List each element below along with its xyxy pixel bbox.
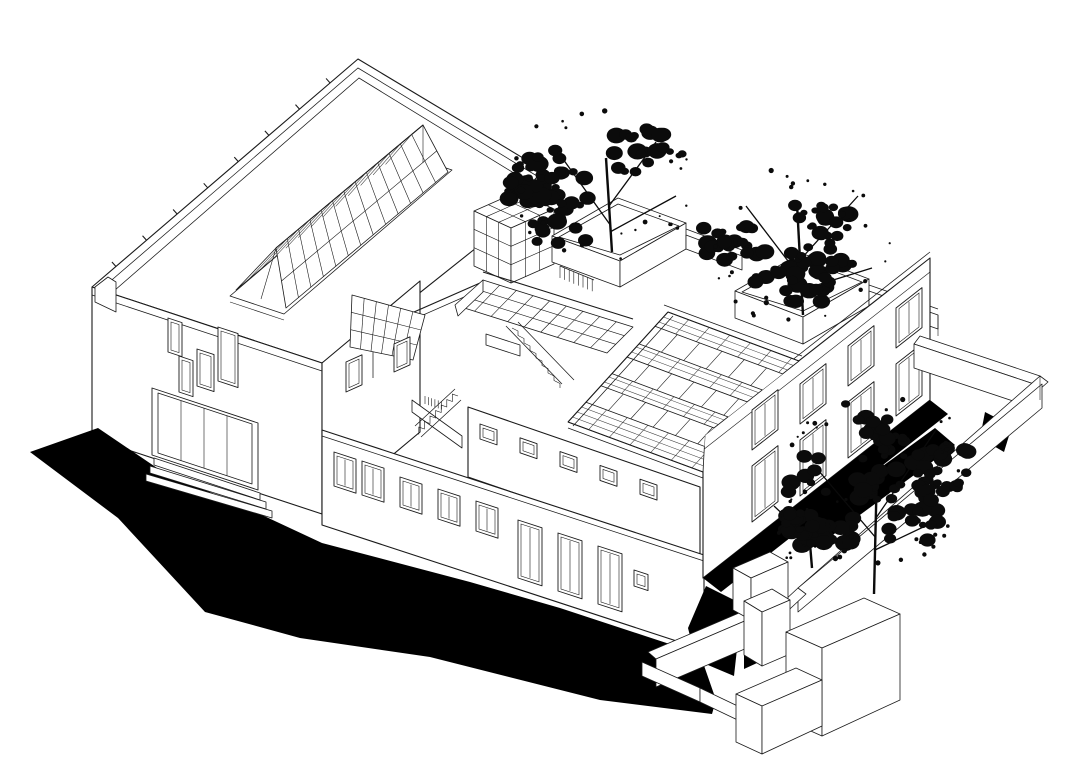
foliage-blob: [532, 152, 544, 162]
window: [179, 356, 193, 397]
foliage-blob: [756, 244, 775, 259]
foliage-blob: [569, 222, 583, 233]
window: [197, 349, 214, 392]
foliage-speckle: [957, 469, 960, 472]
foliage-speckle: [803, 490, 808, 495]
foliage-speckle: [816, 426, 818, 428]
foliage-blob: [806, 540, 815, 548]
foliage-blob: [544, 172, 559, 184]
foliage-blob: [790, 478, 801, 487]
foliage-blob: [551, 237, 566, 249]
foliage-speckle: [557, 152, 560, 155]
foliage-speckle: [837, 555, 842, 560]
foliage-blob: [866, 416, 880, 428]
foliage-blob: [961, 468, 971, 477]
foliage-blob: [569, 168, 578, 175]
foliage-blob: [896, 481, 906, 489]
foliage-speckle: [739, 206, 743, 210]
tower-box: [744, 589, 790, 666]
foliage-blob: [887, 462, 906, 478]
foliage-speckle: [933, 533, 937, 537]
foliage-blob: [676, 153, 683, 159]
foliage-speckle: [669, 159, 673, 163]
foliage-speckle: [900, 397, 905, 402]
foliage-blob: [821, 488, 831, 496]
foliage-speckle: [859, 288, 863, 292]
foliage-speckle: [943, 441, 948, 446]
foliage-blob: [532, 237, 543, 246]
foliage-blob: [576, 171, 594, 185]
foliage-blob: [736, 224, 745, 232]
foliage-speckle: [752, 314, 756, 318]
foliage-blob: [740, 248, 753, 259]
foliage-speckle: [968, 455, 971, 458]
foliage-speckle: [777, 531, 781, 535]
foliage-speckle: [643, 220, 648, 225]
foliage-blob: [803, 243, 813, 251]
foliage-speckle: [864, 224, 868, 228]
foliage-blob: [512, 163, 524, 173]
foliage-blob: [847, 260, 857, 268]
foliage-speckle: [634, 229, 636, 231]
foliage-blob: [657, 142, 670, 153]
foliage-speckle: [945, 447, 949, 451]
foliage-blob: [838, 211, 846, 217]
foliage-blob: [651, 128, 669, 143]
foliage-blob: [503, 176, 519, 189]
foliage-blob: [630, 167, 642, 176]
foliage-speckle: [718, 277, 720, 279]
foliage-blob: [642, 158, 654, 168]
foliage-blob: [853, 415, 865, 425]
foliage-speckle: [789, 297, 792, 300]
foliage-speckle: [919, 540, 923, 544]
foliage-speckle: [713, 244, 718, 249]
foliage-speckle: [946, 524, 950, 528]
foliage-blob: [923, 494, 939, 507]
foliage-blob: [781, 520, 791, 528]
foliage-speckle: [863, 279, 867, 283]
foliage-speckle: [764, 296, 768, 300]
foliage-blob: [787, 276, 798, 285]
foliage-blob: [805, 520, 820, 532]
foliage-speckle: [844, 498, 847, 501]
foliage-blob: [517, 187, 525, 194]
foliage-speckle: [561, 120, 564, 123]
foliage-blob: [886, 494, 897, 503]
foliage-blob: [936, 486, 950, 498]
foliage-blob: [556, 199, 566, 207]
foliage-speckle: [789, 500, 792, 503]
foliage-speckle: [665, 145, 668, 148]
foliage-speckle: [534, 124, 538, 128]
foliage-blob: [636, 150, 646, 158]
foliage-blob: [825, 256, 838, 267]
foliage-blob: [748, 275, 764, 288]
foliage-speckle: [914, 537, 918, 541]
foliage-speckle: [619, 257, 622, 260]
window: [168, 318, 182, 357]
foliage-blob: [783, 509, 796, 520]
foliage-blob: [771, 266, 787, 279]
foliage-speckle: [785, 556, 788, 559]
foliage-blob: [817, 203, 828, 212]
foliage-speckle: [730, 270, 734, 274]
foliage-speckle: [520, 214, 523, 217]
foliage-blob: [854, 482, 873, 497]
foliage-blob: [953, 479, 964, 488]
foliage-blob: [788, 295, 804, 308]
foliage-speckle: [861, 194, 865, 198]
foliage-blob: [881, 414, 893, 424]
foliage-blob: [812, 226, 829, 240]
foliage-blob: [547, 213, 567, 229]
foliage-speckle: [789, 552, 792, 555]
foliage-blob: [625, 133, 637, 143]
foliage-speckle: [833, 556, 838, 561]
foliage-blob: [505, 193, 517, 203]
foliage-speckle: [875, 560, 880, 565]
foliage-speckle: [942, 534, 946, 538]
foliage-speckle: [824, 422, 828, 426]
foliage-speckle: [931, 545, 935, 549]
foliage-speckle: [789, 556, 792, 559]
foliage-blob: [779, 285, 792, 296]
foliage-speckle: [806, 179, 809, 182]
foliage-speckle: [797, 436, 799, 438]
foliage-speckle: [514, 156, 518, 160]
foliage-speckle: [580, 112, 585, 117]
foliage-speckle: [769, 168, 774, 173]
foliage-blob: [843, 224, 852, 231]
foliage-blob: [884, 534, 896, 544]
foliage-speckle: [812, 421, 817, 426]
foliage-blob: [881, 523, 896, 535]
foliage-speckle: [824, 315, 826, 317]
foliage-blob: [795, 509, 805, 517]
foliage-speckle: [823, 183, 826, 186]
foliage-blob: [788, 200, 802, 211]
foliage-speckle: [669, 223, 673, 227]
foliage-speckle: [790, 443, 795, 448]
foliage-blob: [912, 449, 925, 460]
foliage-speckle: [948, 417, 951, 420]
foliage-blob: [888, 511, 901, 521]
foliage-blob: [793, 212, 806, 223]
foliage-blob: [905, 515, 920, 527]
foliage-speckle: [963, 453, 968, 458]
foliage-blob: [579, 191, 595, 204]
foliage-speckle: [885, 408, 888, 411]
foliage-speckle: [806, 421, 809, 424]
foliage-blob: [878, 445, 889, 454]
foliage-speckle: [849, 534, 854, 539]
foliage-blob: [796, 526, 804, 532]
foliage-blob: [717, 237, 731, 249]
foliage-blob: [841, 400, 850, 407]
foliage-blob: [913, 469, 923, 478]
foliage-speckle: [786, 175, 789, 178]
foliage-blob: [547, 207, 554, 213]
foliage-speckle: [786, 317, 790, 321]
foliage-speckle: [620, 232, 622, 234]
foliage-speckle: [852, 190, 855, 193]
foliage-speckle: [802, 431, 805, 434]
foliage-speckle: [884, 260, 886, 262]
foliage-speckle: [676, 226, 679, 229]
drawing-canvas: Axonometric architectural line drawing o…: [0, 0, 1080, 760]
foliage-blob: [925, 520, 937, 530]
foliage-blob: [809, 284, 823, 295]
foliage-blob: [797, 252, 806, 259]
foliage-speckle: [728, 275, 731, 278]
foliage-speckle: [941, 451, 944, 454]
foliage-speckle: [940, 420, 943, 423]
foliage-blob: [528, 219, 539, 228]
foliage-blob: [548, 145, 562, 157]
foliage-blob: [797, 450, 813, 463]
foliage-blob: [611, 162, 626, 174]
foliage-blob: [807, 479, 815, 486]
foliage-blob: [858, 455, 867, 463]
foliage-blob: [831, 231, 843, 241]
foliage-blob: [807, 464, 822, 476]
foliage-blob: [829, 216, 843, 228]
axonometric-drawing: Axonometric architectural line drawing o…: [0, 0, 1080, 760]
foliage-speckle: [528, 231, 531, 234]
foliage-speckle: [764, 300, 769, 305]
foliage-speckle: [842, 548, 847, 553]
foliage-speckle: [564, 126, 567, 129]
foliage-blob: [726, 252, 737, 261]
foliage-blob: [696, 222, 711, 235]
foliage-blob: [818, 272, 831, 283]
foliage-speckle: [541, 220, 546, 225]
foliage-blob: [933, 479, 942, 486]
foliage-blob: [815, 535, 833, 550]
foliage-speckle: [580, 243, 584, 247]
foliage-blob: [859, 427, 874, 439]
foliage-speckle: [789, 185, 793, 189]
foliage-speckle: [680, 167, 683, 170]
foliage-speckle: [889, 242, 891, 244]
foliage-speckle: [562, 248, 566, 252]
foliage-speckle: [836, 500, 839, 503]
foliage-blob: [737, 238, 748, 247]
foliage-speckle: [685, 158, 687, 160]
foliage-blob: [912, 507, 923, 516]
foliage-blob: [829, 204, 838, 212]
foliage-speckle: [922, 552, 926, 556]
foliage-speckle: [602, 108, 607, 113]
foliage-speckle: [659, 215, 661, 217]
foliage-speckle: [685, 205, 687, 207]
foliage-speckle: [899, 558, 903, 562]
foliage-blob: [606, 146, 623, 160]
foliage-speckle: [734, 300, 738, 304]
foliage-blob: [900, 453, 907, 459]
foliage-blob: [811, 452, 826, 464]
